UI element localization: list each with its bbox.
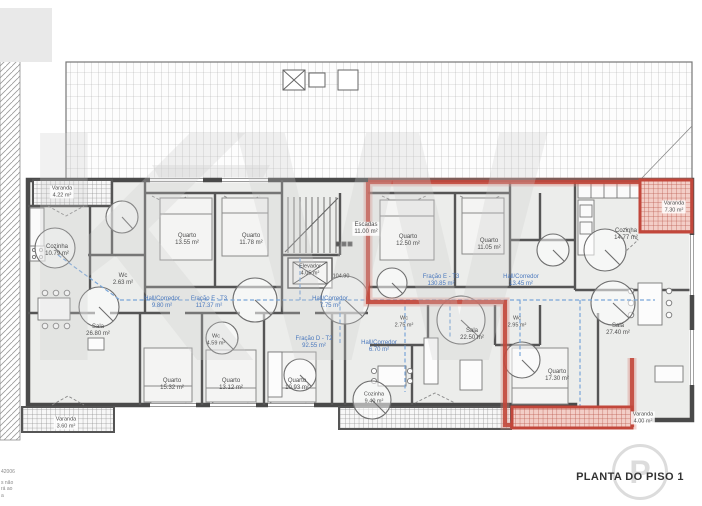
- label-fracao-d: Fração D - T292.55 m²: [296, 336, 333, 350]
- label-quarto-e1: Quarto12.50 m²: [396, 234, 420, 248]
- roof-hatch: [66, 62, 692, 187]
- disclaimer-line: a: [1, 494, 4, 499]
- label-sala-e: Sala27.40 m²: [606, 323, 630, 337]
- label-varanda-tl: Varanda4.22 m²: [50, 185, 74, 198]
- label-wc-e2: Wc2.95 m²: [508, 315, 527, 328]
- watermark-block: [0, 8, 52, 62]
- floor-plan-drawing: [0, 0, 702, 506]
- plan-title: PLANTA DO PISO 1: [560, 471, 700, 483]
- disclaimer-line: rá ao: [1, 487, 12, 492]
- floor-plan-page: KW Varanda4.22 m² Cozinha10.79 m² Wc2.63…: [0, 0, 702, 506]
- label-quarto-f1: Quarto13.55 m²: [175, 233, 199, 247]
- label-hall-f: Hall/Corredor9.80 m²: [144, 296, 180, 310]
- label-fracao-e: Fração E - T3130.85 m²: [423, 274, 460, 288]
- label-wc-f: Wc4.59 m²: [207, 333, 226, 346]
- label-varanda-bl: Varanda3.60 m²: [54, 416, 78, 429]
- label-wc-e1: Wc2.75 m²: [395, 315, 414, 328]
- label-cozinha-e: Cozinha14.77 m²: [614, 228, 638, 242]
- label-quarto-d1: Quarto15.32 m²: [160, 378, 184, 392]
- label-escadas: Escadas11.00 m²: [352, 222, 379, 236]
- roof-skylight-boxes: [283, 70, 358, 90]
- label-hall-d: Hall/Corredor7.75 m²: [312, 296, 348, 310]
- disclaimer-line: 42006: [1, 470, 15, 475]
- label-varanda-tr: Varanda7.30 m²: [662, 200, 686, 213]
- label-quarto-d3: Quarto10.93 m²: [285, 378, 309, 392]
- label-sala-f: Sala26.80 m²: [86, 324, 110, 338]
- label-hall-d2: Hall/Corredor6.70 m²: [361, 340, 397, 354]
- label-quarto-e3: Quarto17.30 m²: [545, 369, 569, 383]
- label-quarto-f2: Quarto11.78 m²: [239, 233, 262, 247]
- label-elevador: Elevador4.05 m²: [299, 263, 321, 276]
- label-elevation: 104.90: [333, 274, 350, 281]
- label-varanda-br: Varanda4.00 m²: [631, 411, 655, 424]
- label-cozinha-left: Cozinha10.79 m²: [45, 244, 69, 258]
- label-hall-e: Hall/Corredor13.45 m²: [503, 274, 539, 288]
- label-sala-d: Sala22.50 m²: [460, 328, 484, 342]
- label-cozinha-d: Cozinha9.40 m²: [364, 391, 384, 404]
- label-quarto-d2: Quarto13.12 m²: [219, 378, 243, 392]
- label-fracao-f: Fração F - T3117.37 m²: [191, 296, 227, 310]
- label-quarto-e2: Quarto11.05 m²: [477, 238, 500, 252]
- red-balcony-bottom-right: [512, 407, 632, 428]
- label-wc-left: Wc2.63 m²: [113, 273, 133, 287]
- site-boundary-hatch: [0, 57, 20, 440]
